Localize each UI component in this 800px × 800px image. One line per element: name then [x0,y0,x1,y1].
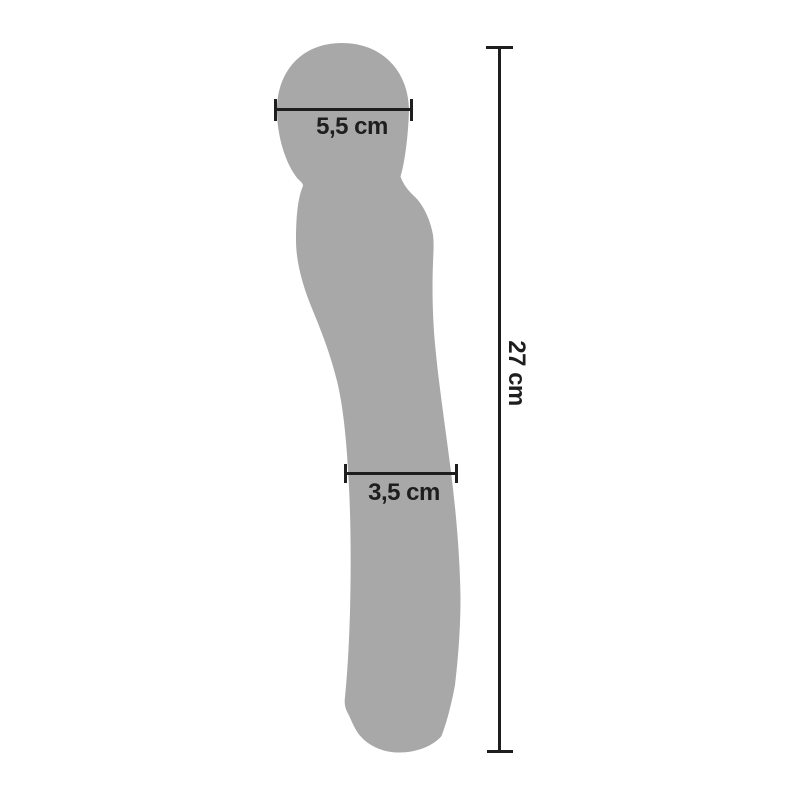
total-length-label: 27 cm [504,340,528,406]
diagram-canvas [0,0,800,800]
shaft-width-label: 3,5 cm [368,481,440,505]
product-dimension-diagram: 5,5 cm 3,5 cm 27 cm [0,0,800,800]
head-width-label: 5,5 cm [316,115,388,139]
product-silhouette [277,43,461,753]
